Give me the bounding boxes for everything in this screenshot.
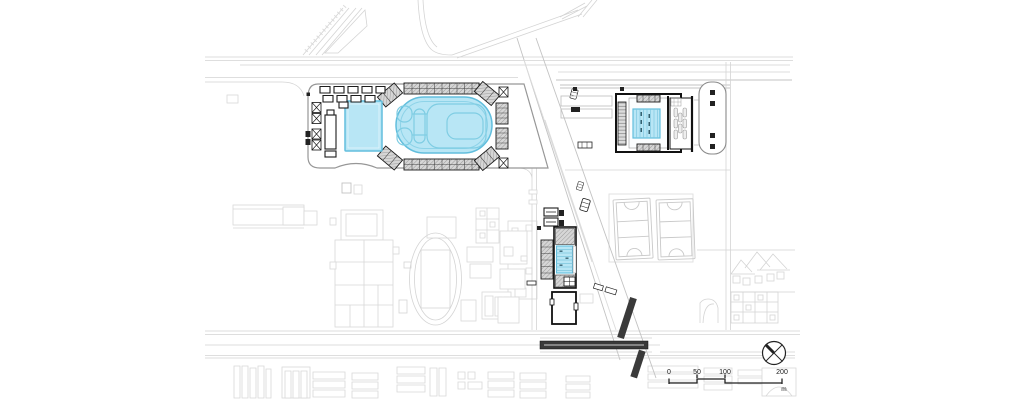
hall-roof-north: [556, 229, 575, 245]
whitewater-oval: [396, 97, 492, 153]
competition-pool: [633, 109, 660, 138]
parking-strips: [561, 87, 624, 148]
training-pool: [557, 246, 573, 273]
aquatics-stand-south: [637, 144, 660, 151]
pool-deck-strip: [573, 246, 576, 273]
whitewater-stadium-site: [205, 81, 548, 170]
approach-road: [205, 82, 304, 96]
site-plan-canvas: 0 50 100 200 m: [0, 0, 1024, 410]
scale-tick-50: 50: [693, 369, 701, 376]
background-buildings-south: [234, 366, 796, 398]
background-buildings-east: [697, 250, 795, 323]
scale-tick-0: 0: [667, 369, 671, 376]
aquatics-stand-north: [637, 95, 660, 102]
aquatics-stand-west: [618, 102, 626, 145]
outbuildings: [544, 208, 558, 226]
streets-top-dark: [556, 80, 792, 88]
background-context: [205, 0, 800, 398]
aquatics-centre: [561, 82, 726, 154]
entry-pavilion: [694, 82, 726, 154]
sports-courts: [609, 194, 695, 262]
south-building: [550, 292, 578, 324]
scale-unit-label: m: [781, 386, 786, 393]
kiosk: [527, 281, 536, 285]
streets-top: [205, 0, 793, 78]
vehicle-icon: [576, 181, 584, 191]
site-plan-page: 0 50 100 200 m: [0, 0, 1024, 410]
dry-hall: [670, 96, 692, 152]
scale-tick-200: 200: [776, 369, 788, 376]
north-arrow-icon: [763, 342, 786, 365]
scale-tick-100: 100: [719, 369, 731, 376]
athletics-track: [399, 233, 462, 325]
warmup-pool: [345, 101, 382, 151]
bus-stop-icon: [579, 198, 590, 212]
platform-markers: [593, 283, 616, 295]
streets-bottom: [205, 331, 800, 358]
